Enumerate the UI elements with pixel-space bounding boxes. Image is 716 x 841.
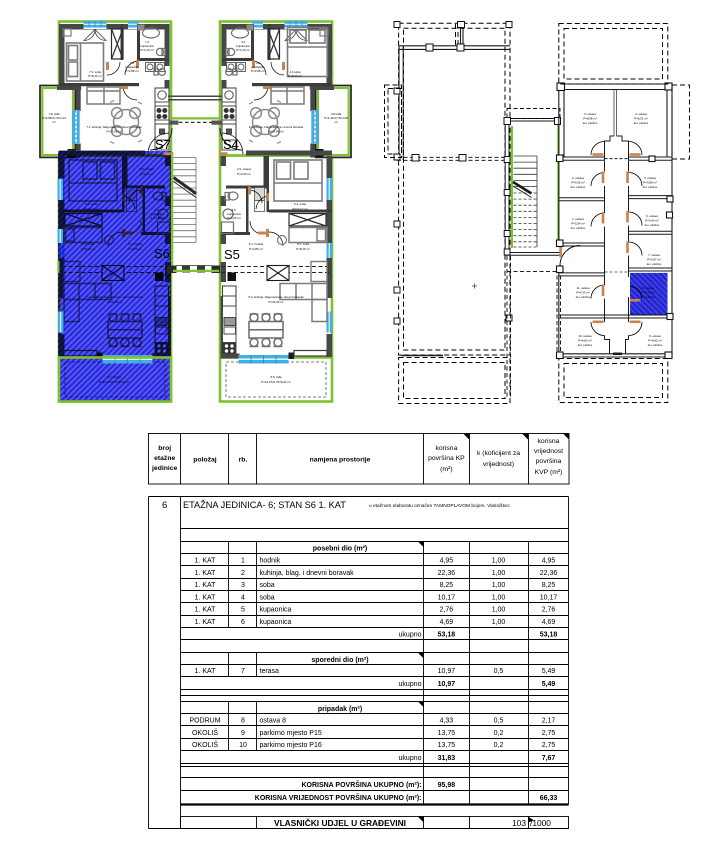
svg-text:1. KAT: 1. KAT [195,582,217,589]
svg-text:kuhinja, blag. i dnevni borava: kuhinja, blag. i dnevni boravak [260,570,355,577]
svg-text:3: 3 [241,582,245,589]
svg-text:ker. pločice: ker. pločice [583,121,598,125]
svg-text:P=8,91 m²: P=8,91 m² [634,117,647,121]
svg-text:rb.: rb. [239,457,248,464]
svg-text:PODRUM: PODRUM [189,718,220,725]
svg-text:1. KAT: 1. KAT [195,570,217,577]
svg-text:P=4,82 m²: P=4,82 m² [578,339,591,343]
svg-text:ker. pločice: ker. pločice [645,223,660,227]
svg-text:5,49: 5,49 [542,668,556,675]
svg-text:6.3. soba: 6.3. soba [85,202,97,206]
svg-text:P=8,25 m²: P=8,25 m² [81,247,94,251]
svg-text:6. ostava: 6. ostava [646,214,658,218]
svg-text:2,17: 2,17 [542,718,556,725]
svg-text:P=3,54 m²: P=3,54 m² [571,222,584,226]
svg-text:P=3,87 m²: P=3,87 m² [647,258,660,262]
svg-text:OKOLIŠ: OKOLIŠ [192,740,218,749]
svg-text:31,83: 31,83 [438,755,456,762]
svg-text:9: 9 [241,730,245,737]
svg-text:ETAŽNA JEDINICA- 6; STAN S6 1.: ETAŽNA JEDINICA- 6; STAN S6 1. KAT [183,500,346,510]
svg-text:5. ostava: 5. ostava [644,176,656,180]
svg-text:5.5. lođa: 5.5. lođa [270,375,281,379]
svg-text:P=10,17 m²: P=10,17 m² [292,207,307,211]
svg-text:pripadak (m²): pripadak (m²) [318,706,362,713]
svg-text:5: 5 [241,607,245,614]
svg-text:P=10,17 m²: P=10,17 m² [83,207,98,211]
svg-text:8,25: 8,25 [542,582,556,589]
svg-text:P=3,16 m²: P=3,16 m² [140,48,153,52]
svg-text:4,69: 4,69 [440,619,454,626]
svg-text:S4: S4 [223,137,239,152]
svg-text:10,17: 10,17 [438,594,456,601]
svg-text:10. ostava: 10. ostava [578,334,592,338]
svg-text:1,00: 1,00 [492,558,506,565]
svg-text:95,98: 95,98 [438,782,456,789]
svg-text:4,95: 4,95 [542,558,556,565]
svg-text:0,2: 0,2 [494,742,504,749]
svg-text:4,95: 4,95 [440,558,454,565]
svg-text:1,00: 1,00 [492,607,506,614]
svg-text:KVP (m²): KVP (m²) [535,469,563,476]
svg-text:kupaonica: kupaonica [260,619,292,626]
svg-text:(m²): (m²) [440,466,452,473]
svg-text:7. ostava: 7. ostava [648,253,660,257]
svg-text:1. ostava: 1. ostava [572,217,584,221]
svg-text:KORISNA VRIJEDNOST POVRŠINA UK: KORISNA VRIJEDNOST POVRŠINA UKUPNO (m²): [255,793,422,802]
svg-text:P=10,97x0,75=8,22 m²: P=10,97x0,75=8,22 m² [261,380,290,384]
svg-text:P=2,60 m²: P=2,60 m² [140,172,153,176]
svg-text:P=4,69 m²: P=4,69 m² [150,216,163,220]
svg-text:1,00: 1,00 [492,582,506,589]
svg-text:ker. pločice: ker. pločice [578,343,593,347]
svg-text:10,97: 10,97 [438,681,456,688]
svg-text:0,2: 0,2 [494,730,504,737]
svg-text:1,00: 1,00 [492,594,506,601]
svg-text:66,33: 66,33 [540,795,558,802]
svg-text:k (koficijent za: k (koficijent za [477,450,520,457]
svg-text:jedinice: jedinice [151,465,178,472]
svg-text:terasa: terasa [260,668,280,675]
svg-text:8,25: 8,25 [440,582,454,589]
svg-text:1,00: 1,00 [492,619,506,626]
svg-text:1. KAT: 1. KAT [195,607,217,614]
svg-text:2,75: 2,75 [542,730,556,737]
svg-text:parkirno mjesto P15: parkirno mjesto P15 [260,730,322,737]
svg-text:4.5. ostava: 4.5. ostava [237,167,252,171]
svg-text:7,67: 7,67 [542,755,556,762]
svg-text:m²: m² [52,120,55,124]
svg-text:6: 6 [162,500,167,511]
svg-text:m²: m² [334,120,337,124]
svg-text:1. KAT: 1. KAT [195,558,217,565]
svg-text:P=4,82 m²: P=4,82 m² [648,339,661,343]
svg-text:etažne: etažne [154,455,175,462]
svg-text:korisna: korisna [435,445,457,452]
svg-text:3. ostava: 3. ostava [584,112,596,116]
svg-text:0,5: 0,5 [494,718,504,725]
svg-text:P=8,98 m²: P=8,98 m² [583,117,596,121]
svg-text:S5: S5 [224,247,240,262]
svg-text:2,76: 2,76 [440,607,454,614]
svg-text:sporedni dio (m²): sporedni dio (m²) [311,657,368,664]
svg-text:6.1. hodnik: 6.1. hodnik [128,242,143,246]
svg-text:5.2. kuhinja, blagovaonica i d: 5.2. kuhinja, blagovaonica i dnevni bora… [248,295,304,299]
svg-text:P=17,88 m²: P=17,88 m² [106,130,121,134]
svg-text:11. ostava: 11. ostava [576,286,590,290]
svg-text:22,36: 22,36 [540,570,558,577]
svg-text:P=17,88 m²: P=17,88 m² [268,130,283,134]
svg-text:9. ostava: 9. ostava [649,334,661,338]
svg-text:103: 103 [512,818,526,828]
svg-text:KORISNA POVRŠINA UKUPNO (m²):: KORISNA POVRŠINA UKUPNO (m²): [301,780,421,789]
svg-text:6: 6 [241,619,245,626]
svg-text:ukupno: ukupno [399,755,422,762]
svg-text:10: 10 [239,742,247,749]
svg-text:površina KP: površina KP [428,455,465,462]
svg-text:soba: soba [260,594,275,601]
svg-text:5.1. hodnik: 5.1. hodnik [249,242,264,246]
svg-text:soba: soba [260,582,275,589]
svg-text:ker. pločice: ker. pločice [576,295,591,299]
svg-text:5.4. soba: 5.4. soba [294,202,306,206]
svg-text:1. KAT: 1. KAT [195,619,217,626]
svg-text:ostava 8: ostava 8 [260,718,287,725]
svg-text:53,18: 53,18 [438,631,456,638]
svg-text:P=4,69 m²: P=4,69 m² [227,216,240,220]
svg-text:13,75: 13,75 [438,730,456,737]
svg-text:P=8,14 m²: P=8,14 m² [88,74,101,78]
svg-text:ker. pločice: ker. pločice [634,121,649,125]
svg-text:vrijednost: vrijednost [534,448,563,455]
svg-text:namjena prostorije: namjena prostorije [310,457,371,464]
svg-text:ker. pločice: ker. pločice [571,226,586,230]
svg-text:4. ostava: 4. ostava [635,112,647,116]
svg-text:P=22,36 m²: P=22,36 m² [268,300,283,304]
svg-text:P=8,14 m²: P=8,14 m² [288,74,301,78]
svg-text:5,49: 5,49 [542,681,556,688]
svg-text:P=2,60 m²: P=2,60 m² [237,172,250,176]
svg-text:ker. pločice: ker. pločice [648,343,663,347]
svg-text:S6: S6 [154,246,170,261]
svg-text:1: 1 [241,558,245,565]
svg-text:P=3,54 m²: P=3,54 m² [645,219,658,223]
svg-text:hodnik: hodnik [260,558,281,565]
svg-text:S7: S7 [155,137,171,152]
svg-text:4,33: 4,33 [440,718,454,725]
svg-text:/1000: /1000 [530,818,551,828]
svg-text:P=3,56 m²: P=3,56 m² [571,181,584,185]
svg-text:22,36: 22,36 [438,570,456,577]
svg-text:P=22,36 m²: P=22,36 m² [107,300,122,304]
svg-text:2,75: 2,75 [542,742,556,749]
svg-text:P=4,86 m²: P=4,86 m² [249,247,262,251]
svg-text:položaj: položaj [193,457,217,464]
svg-text:7.1. kuhinja, blagovaonica i d: 7.1. kuhinja, blagovaonica i dnevni bora… [86,125,142,129]
svg-text:4.1 kuhinja, blagovaonica i dn: 4.1 kuhinja, blagovaonica i dnevni borav… [249,125,304,129]
svg-text:1,00: 1,00 [492,570,506,577]
svg-text:6.7. terasa: 6.7. terasa [107,375,121,379]
svg-text:P=4,33 m²: P=4,33 m² [576,291,589,295]
svg-text:1. KAT: 1. KAT [195,594,217,601]
svg-text:6.4. soba: 6.4. soba [82,242,94,246]
svg-text:P=10,97x0,75=8,22 m²: P=10,97x0,75=8,22 m² [99,380,128,384]
svg-text:posebni dio (m²): posebni dio (m²) [313,546,367,553]
svg-text:površina: površina [536,458,562,465]
svg-text:4,69: 4,69 [542,619,556,626]
svg-text:13,75: 13,75 [438,742,456,749]
svg-text:ker. pločice: ker. pločice [647,262,662,266]
svg-text:53,18: 53,18 [540,631,558,638]
svg-text:2. ostava: 2. ostava [572,176,584,180]
svg-text:ukupno: ukupno [399,681,422,688]
svg-text:2,76: 2,76 [542,607,556,614]
svg-text:parkirno mjesto P16: parkirno mjesto P16 [260,742,322,749]
svg-text:4: 4 [241,594,245,601]
svg-text:10,97: 10,97 [438,668,456,675]
svg-text:8: 8 [241,718,245,725]
svg-text:u etažnom elaboratu označen TA: u etažnom elaboratu označen TAMNOPLAVOM … [369,503,510,509]
svg-text:8. ostava: 8. ostava [642,286,654,290]
svg-text:P=3,88 m²: P=3,88 m² [643,181,656,185]
svg-text:VLASNIČKI UDJEL U GRAĐEVINI: VLASNIČKI UDJEL U GRAĐEVINI [274,817,406,828]
svg-text:P=2,88 m²: P=2,88 m² [125,69,138,73]
svg-text:ukupno: ukupno [399,631,422,638]
svg-text:ker. pločice: ker. pločice [641,295,656,299]
svg-text:kupaonica: kupaonica [260,607,292,614]
svg-text:7: 7 [241,668,245,675]
svg-text:P=4,95 m²: P=4,95 m² [128,247,141,251]
svg-text:0,5: 0,5 [494,668,504,675]
svg-text:6.6. ostava: 6.6. ostava [140,167,155,171]
svg-text:korisna: korisna [538,438,560,445]
svg-text:2: 2 [241,570,245,577]
svg-text:6.2. kuhinja, blagovaonica i d: 6.2. kuhinja, blagovaonica i dnevni bora… [87,295,143,299]
svg-text:10,17: 10,17 [540,594,558,601]
svg-text:1. KAT: 1. KAT [195,668,217,675]
svg-text:P=8,26 m²: P=8,26 m² [296,247,309,251]
svg-text:broj: broj [158,445,171,452]
svg-text:P=3,16 m²: P=3,16 m² [236,48,249,52]
svg-text:P=2,88 m²: P=2,88 m² [251,69,264,73]
svg-text:ker. pločice: ker. pločice [571,185,586,189]
svg-text:vrijednost): vrijednost) [483,461,514,468]
svg-text:ker. pločice: ker. pločice [643,185,658,189]
svg-text:OKOLIŠ: OKOLIŠ [192,728,218,737]
svg-text:5.3. soba: 5.3. soba [297,242,309,246]
svg-text:P=4,33 m²: P=4,33 m² [641,291,654,295]
